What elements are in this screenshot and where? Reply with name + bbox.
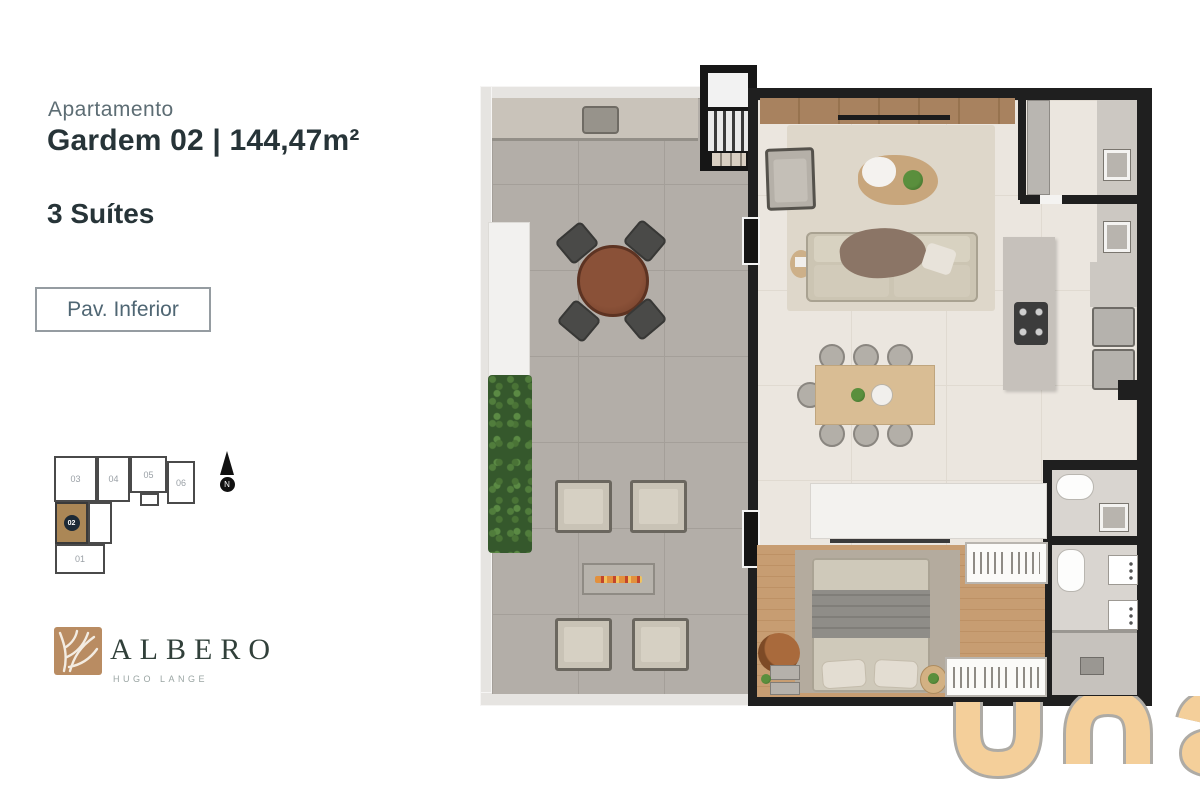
flame-strip [595,576,642,583]
floor-plan [480,62,1156,710]
keyplan-unit-05: 05 [130,456,167,493]
bed-pillow [873,659,918,689]
lounge-chair [630,480,687,533]
shower-drain [1080,657,1104,675]
lavabo-counter [1097,100,1137,197]
shower-area [1052,630,1137,695]
wall-bath1-bottom [1043,536,1150,545]
terrace-sink [582,106,619,134]
cooktop [1014,302,1048,345]
kitchen-counter [1090,262,1137,307]
keyplan: 03 04 05 06 02 01 [52,450,242,578]
stair-lower-steps [712,153,746,166]
bed-blanket [812,590,930,638]
stair-treads [708,111,748,151]
plant [761,674,771,684]
sliding-glass-door [742,217,760,265]
terrace-parapet-bottom [480,692,758,706]
hangers [984,667,1007,688]
plant [851,388,865,402]
plant [903,170,923,190]
keyplan-unit-03: 03 [54,456,97,502]
bedside-table [920,665,947,694]
vanity-sink [1108,555,1138,585]
toilet [1056,474,1094,500]
bed [812,558,930,692]
developer-subtitle: HUGO LANGE [113,674,208,684]
keyplan-unit-01: 01 [55,544,105,574]
coffee-table [858,155,938,205]
lounge-chair [555,618,612,671]
hangers [1016,667,1039,688]
tv [838,115,950,120]
keyplan-unit-04: 04 [97,456,130,502]
una-watermark: una [938,696,1200,781]
keyplan-unit-06: 06 [167,461,195,504]
vanity-sink [1108,600,1138,630]
refrigerator [1092,307,1135,347]
wardrobe [945,657,1047,697]
floor-selector-label: Pav. Inferior [67,298,179,322]
tray [862,157,896,187]
presentation-page: Apartamento Gardem 02 | 144,47m² 3 Suíte… [0,0,1200,797]
lounge-chair [555,480,612,533]
dining-table [815,365,935,425]
sofa [806,232,978,302]
wall-lavabo-bottom [1020,195,1137,204]
north-letter: N [220,477,235,492]
armchair [765,147,816,211]
stair-landing [708,73,748,107]
lavabo-sink [1104,150,1130,180]
north-arrow-icon [220,451,234,475]
kitchen-sink [1104,222,1130,252]
tree-branches-icon [54,627,102,675]
una-logo-letters [938,696,1200,781]
terrace-counter [492,98,698,141]
toilet [1057,549,1085,592]
wall-bath1-top [1043,460,1150,470]
developer-name: ALBERO [110,633,278,667]
bed-pillow [821,658,867,689]
dresser [770,682,800,695]
hangers [973,552,1003,574]
keyplan-unit-02-highlighted[interactable]: 02 [55,502,88,544]
wardrobe [965,542,1048,584]
bathroom-sink [1100,504,1128,531]
plant [928,673,939,684]
apartment-title: Gardem 02 | 144,47m² [47,124,360,158]
keyplan-unit-02-badge: 02 [64,515,80,531]
wall-kitchen-corner [1118,380,1152,400]
lounge-chair [632,618,689,671]
apartment-label: Apartamento [48,98,174,122]
suites-subtitle: 3 Suítes [47,198,154,230]
hangers [1011,552,1041,574]
vertical-garden [488,375,532,553]
keyplan-unit-05-tab [140,493,159,506]
door-opening [1040,195,1062,204]
built-in-cabinet [810,483,1047,539]
floor-selector-button[interactable]: Pav. Inferior [35,287,211,332]
plate [871,384,893,406]
bedroom-tv [830,539,950,543]
keyplan-core [88,502,112,544]
hangers [953,667,976,688]
albero-logo-icon [54,627,102,675]
fire-pit-table [582,563,655,595]
dresser [770,665,800,680]
tall-cabinet [1027,100,1050,195]
tv-wood-panel [760,98,1015,124]
north-indicator: N [216,451,238,492]
wall-lavabo-left [1018,98,1026,200]
terrace-planter-bench [488,222,530,378]
kitchen-island [1003,237,1055,390]
